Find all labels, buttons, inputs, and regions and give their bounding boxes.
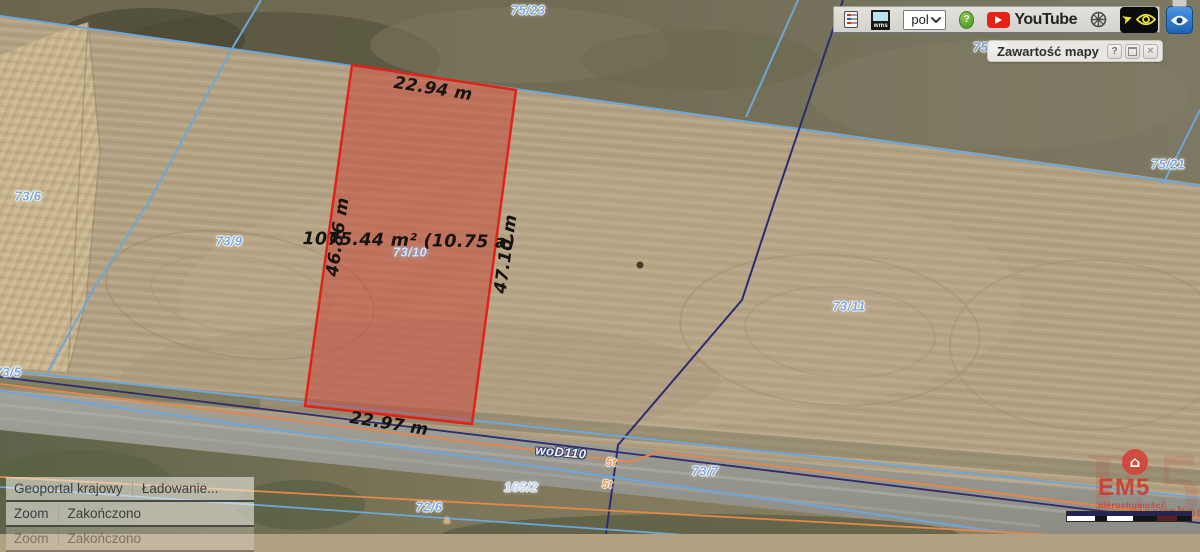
status-message: Zakończono xyxy=(58,506,142,521)
eye-icon xyxy=(1136,13,1156,26)
wheel-icon[interactable] xyxy=(1090,11,1107,28)
chevron-down-icon xyxy=(931,17,941,23)
map-canvas[interactable] xyxy=(0,0,1200,534)
status-message: Zakończono xyxy=(58,531,142,546)
wms-icon[interactable]: wms xyxy=(871,10,890,30)
flight-icon: ➤ xyxy=(1120,11,1135,29)
legend-icon[interactable] xyxy=(844,11,858,28)
status-row: ZoomZakończono xyxy=(6,502,254,527)
panel-help-label: ? xyxy=(1111,46,1117,57)
geoportal-screen: { "toolbar": { "wms_label": "wms", "lang… xyxy=(0,0,1200,534)
map-content-panel-header[interactable]: Zawartość mapy ? × xyxy=(987,40,1163,62)
status-row: Geoportal krajowyŁadowanie... xyxy=(6,477,254,502)
language-value: pol xyxy=(911,12,928,27)
youtube-play-icon xyxy=(987,12,1010,28)
youtube-button[interactable]: YouTube xyxy=(987,11,1077,29)
wheel-glyph xyxy=(1090,11,1107,28)
visibility-eye-button[interactable] xyxy=(1166,6,1193,34)
status-console: Geoportal krajowyŁadowanie...ZoomZakończ… xyxy=(6,477,254,552)
help-button[interactable]: ? xyxy=(959,11,974,29)
status-message: Ładowanie... xyxy=(132,481,219,496)
help-question-icon: ? xyxy=(964,14,970,25)
youtube-label: YouTube xyxy=(1014,11,1077,29)
flight-eye-toggle-button[interactable]: ➤ xyxy=(1120,7,1158,33)
map-content-panel-title: Zawartość mapy xyxy=(997,44,1104,59)
language-select[interactable]: pol xyxy=(903,10,946,30)
wms-label: wms xyxy=(871,22,890,30)
eye-icon xyxy=(1170,14,1189,27)
close-icon: × xyxy=(1147,45,1153,57)
maximize-icon xyxy=(1128,47,1137,56)
panel-close-button[interactable]: × xyxy=(1143,44,1158,59)
partial-button[interactable] xyxy=(1172,0,1187,7)
status-source: Zoom xyxy=(6,506,58,521)
status-source: Geoportal krajowy xyxy=(6,481,132,496)
top-toolbar: wms pol ? YouTube ➤ xyxy=(833,6,1160,34)
wms-screen-icon xyxy=(871,10,890,23)
status-row: ZoomZakończono xyxy=(6,527,254,552)
panel-maximize-button[interactable] xyxy=(1125,44,1140,59)
panel-help-button[interactable]: ? xyxy=(1107,44,1122,59)
status-source: Zoom xyxy=(6,531,58,546)
map-scale-bar xyxy=(1066,511,1192,522)
